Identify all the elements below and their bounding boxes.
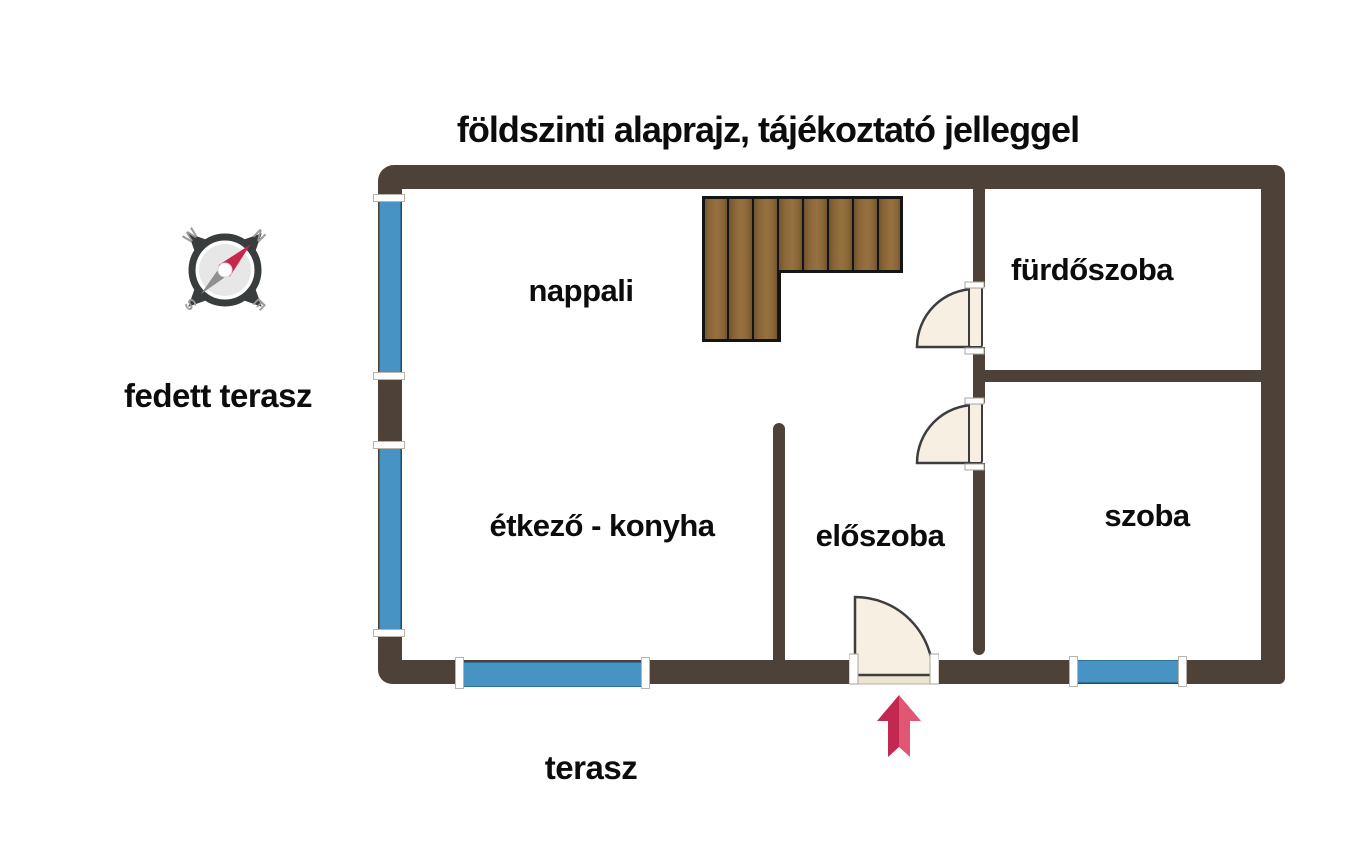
bathroom-room-divider-wall	[985, 370, 1261, 382]
window-left-lower	[379, 447, 401, 635]
hallway-right-wall-upper	[973, 189, 985, 287]
compass-rose-icon: N E S W	[167, 212, 283, 328]
bathroom-door	[910, 281, 988, 355]
window-sill	[373, 441, 405, 449]
entrance-door	[849, 592, 939, 686]
window-sill	[455, 657, 464, 689]
window-bottom-room	[1077, 660, 1180, 683]
room-label-bathroom: fürdőszoba	[1011, 252, 1173, 288]
window-sill	[641, 657, 650, 689]
page-title: földszinti alaprajz, tájékoztató jellegg…	[457, 109, 1079, 151]
room-door	[910, 397, 988, 471]
window-left-upper	[379, 200, 401, 378]
window-sill	[373, 372, 405, 380]
room-label-kitchen-dining: étkező - konyha	[489, 508, 714, 544]
window-sill	[1178, 656, 1187, 687]
floor-plan-canvas: földszinti alaprajz, tájékoztató jellegg…	[0, 0, 1360, 860]
terrace-label: terasz	[545, 749, 637, 787]
room-label-living: nappali	[528, 273, 633, 309]
covered-terrace-label: fedett terasz	[124, 377, 312, 415]
hallway-right-wall-lower	[973, 463, 985, 655]
stairs	[702, 196, 903, 342]
window-sill	[373, 629, 405, 637]
window-bottom-terrace	[463, 662, 643, 687]
hallway-left-wall	[773, 423, 785, 660]
entrance-arrow-icon	[876, 694, 922, 758]
window-sill	[373, 194, 405, 202]
hallway-right-wall-middle	[973, 347, 985, 403]
room-label-hallway: előszoba	[816, 518, 945, 554]
window-sill	[1069, 656, 1078, 687]
room-label-room: szoba	[1104, 498, 1189, 534]
